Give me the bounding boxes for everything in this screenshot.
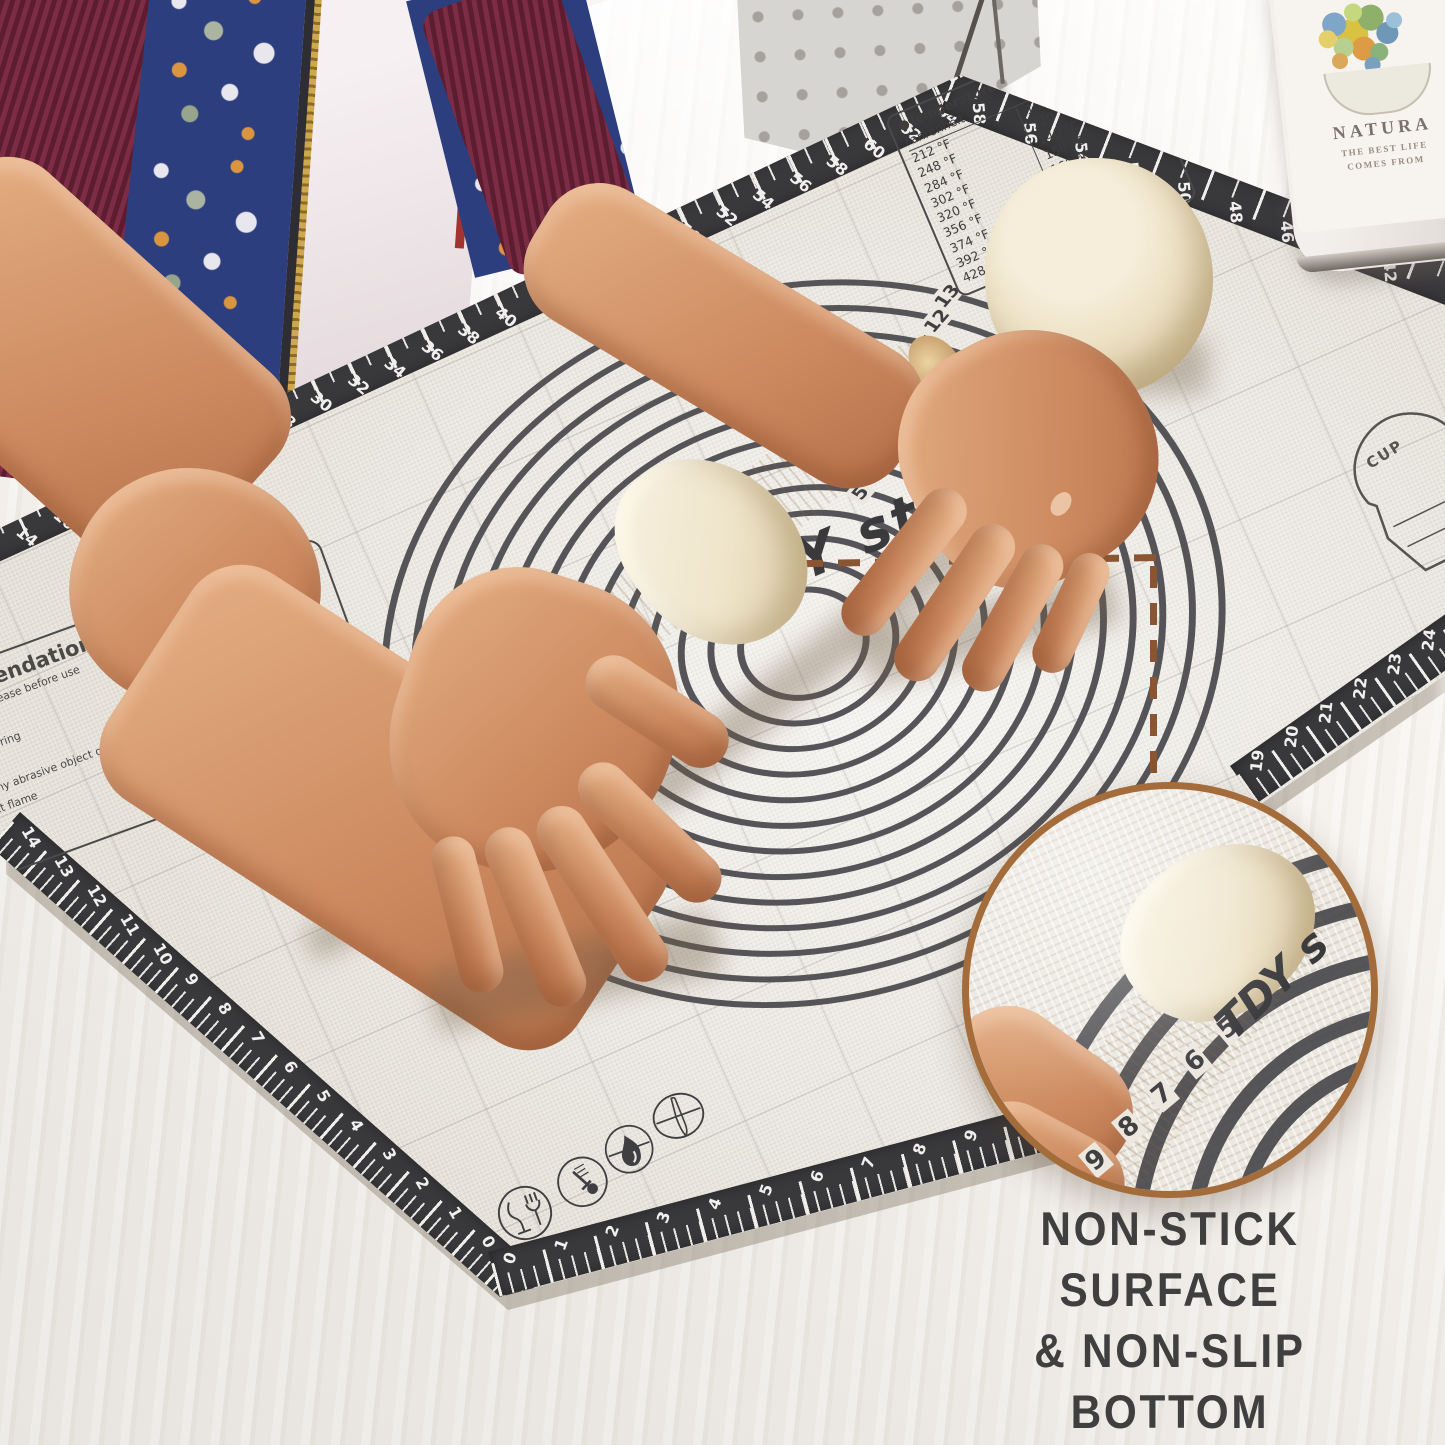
illustration-cup [1323, 63, 1435, 120]
ruler-number: 24 [1418, 628, 1440, 652]
canister-label: NATURA THE BEST LIFE COMES FROM [1271, 0, 1445, 233]
ruler-number: 2 [601, 1222, 623, 1239]
ruler-number: 7 [247, 1028, 269, 1047]
ruler-number: 0 [477, 1232, 499, 1251]
ruler-number: 5 [755, 1181, 777, 1198]
ruler-number: 19 [1246, 749, 1268, 773]
product-photo-scene: 1416182022242628303234363840424446485052… [0, 0, 1445, 1445]
ruler-number: 4 [704, 1195, 726, 1212]
ruler-number: 4 [346, 1116, 368, 1135]
ruler-number: 8 [909, 1141, 931, 1158]
ruler-number: 6 [280, 1057, 302, 1076]
ruler-number: 0 [499, 1250, 521, 1267]
ruler-number: 1 [550, 1236, 572, 1253]
headline-line: NON-STICK SURFACE [932, 1198, 1409, 1320]
ruler-number: 21 [1315, 700, 1337, 724]
dashed-guide-vertical [1150, 566, 1157, 798]
flower-dot [1385, 11, 1403, 29]
ruler-number: 3 [653, 1209, 675, 1226]
ruler-number: 48 [1225, 200, 1246, 224]
ruler-number: 1 [444, 1203, 466, 1222]
magnifier-inset: 98765 TDY s [962, 782, 1378, 1198]
ruler-number: 7 [858, 1154, 880, 1171]
ruler-number: 22 [1349, 676, 1371, 700]
canister: NATURA THE BEST LIFE COMES FROM [1267, 0, 1445, 276]
ruler-number: 5 [313, 1086, 335, 1105]
flower-dot [1331, 52, 1349, 70]
magnifier-glass-sheen [969, 789, 1371, 1191]
ruler-number: 3 [379, 1145, 401, 1164]
ruler-number: 9 [181, 970, 203, 989]
headline-line: BOTTOM [932, 1381, 1409, 1442]
ruler-number: 8 [214, 999, 236, 1018]
headline: NON-STICK SURFACE & NON-SLIP BOTTOM [932, 1198, 1409, 1442]
ruler-number: 2 [411, 1174, 433, 1193]
headline-line: & NON-SLIP [932, 1320, 1409, 1381]
ruler-number: 20 [1281, 725, 1303, 749]
ruler-number: 23 [1384, 652, 1406, 676]
ruler-number: 6 [806, 1168, 828, 1185]
